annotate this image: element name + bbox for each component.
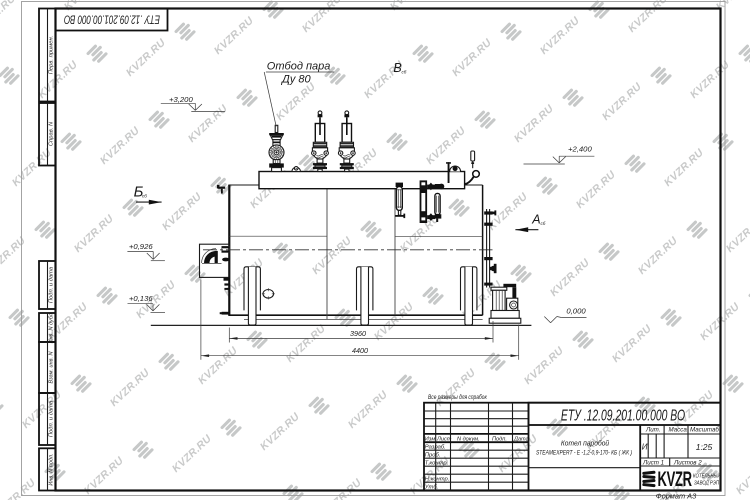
svg-text:Взам. инв. N: Взам. инв. N	[48, 351, 54, 383]
svg-text:сб: сб	[142, 194, 147, 199]
svg-text:N докум.: N докум.	[457, 436, 480, 442]
svg-text:Инв. N дубл.: Инв. N дубл.	[48, 312, 54, 344]
svg-text:сб: сб	[402, 70, 407, 75]
svg-text:Все размеры для спрабок: Все размеры для спрабок	[428, 395, 487, 402]
svg-text:+0,136: +0,136	[129, 294, 153, 303]
svg-text:Подп. и дата: Подп. и дата	[48, 266, 54, 303]
svg-text:STEAMEXPERT - Е -1,2-0,9-170-: STEAMEXPERT - Е -1,2-0,9-170- КБ ( ЖК )	[536, 450, 632, 457]
svg-text:Отбод пара: Отбод пара	[267, 61, 331, 73]
svg-text:KVZR: KVZR	[658, 467, 693, 491]
svg-text:4400: 4400	[352, 346, 368, 355]
svg-text:Подп. и дата: Подп. и дата	[48, 400, 54, 437]
svg-text:И: И	[642, 443, 648, 452]
svg-text:Котел паробой: Котел паробой	[561, 439, 609, 447]
svg-text:+0,926: +0,926	[129, 242, 153, 251]
svg-text:Листов 2: Листов 2	[673, 459, 702, 466]
svg-text:Масштаб: Масштаб	[690, 427, 719, 434]
svg-text:ЕТУ .12.09.201.00.000 ВО: ЕТУ .12.09.201.00.000 ВО	[561, 406, 685, 424]
svg-text:+2,400: +2,400	[568, 145, 592, 154]
svg-text:сб: сб	[541, 221, 546, 226]
svg-text:ЕТУ .12.09.201.00.000 ВО: ЕТУ .12.09.201.00.000 ВО	[64, 12, 160, 25]
svg-text:Лист 1: Лист 1	[642, 459, 664, 466]
svg-text:Разраб.: Разраб.	[425, 445, 446, 451]
svg-text:0,000: 0,000	[566, 307, 586, 316]
svg-text:Ду 80: Ду 80	[280, 73, 312, 85]
svg-text:Подп.: Подп.	[492, 436, 507, 442]
svg-text:Формат А3: Формат А3	[656, 491, 697, 500]
svg-text:В: В	[393, 61, 401, 75]
svg-text:Изм: Изм	[425, 436, 436, 442]
svg-text:+3,200: +3,200	[169, 95, 193, 104]
svg-text:Лит.: Лит.	[645, 427, 661, 434]
svg-text:Инв. N подл.: Инв. N подл.	[48, 453, 54, 485]
svg-text:Н.контр.: Н.контр.	[425, 477, 450, 483]
svg-text:ЗАВОД РЭП: ЗАВОД РЭП	[694, 480, 719, 487]
svg-text:Перв. примен.: Перв. примен.	[48, 36, 54, 75]
svg-text:Лист: Лист	[436, 436, 452, 442]
svg-text:Справ. N: Справ. N	[48, 121, 54, 146]
svg-text:3960: 3960	[350, 329, 366, 338]
svg-text:Масса: Масса	[669, 427, 688, 434]
svg-text:Утб.: Утб.	[424, 485, 438, 491]
svg-text:А: А	[531, 213, 540, 227]
svg-text:КОТЕЛЬНЫЙ: КОТЕЛЬНЫЙ	[693, 471, 721, 480]
svg-text:Дата: Дата	[513, 436, 529, 442]
svg-text:1:25: 1:25	[696, 442, 713, 452]
svg-text:Т.контр.: Т.контр.	[425, 461, 448, 467]
svg-text:Проб.: Проб.	[425, 453, 441, 459]
